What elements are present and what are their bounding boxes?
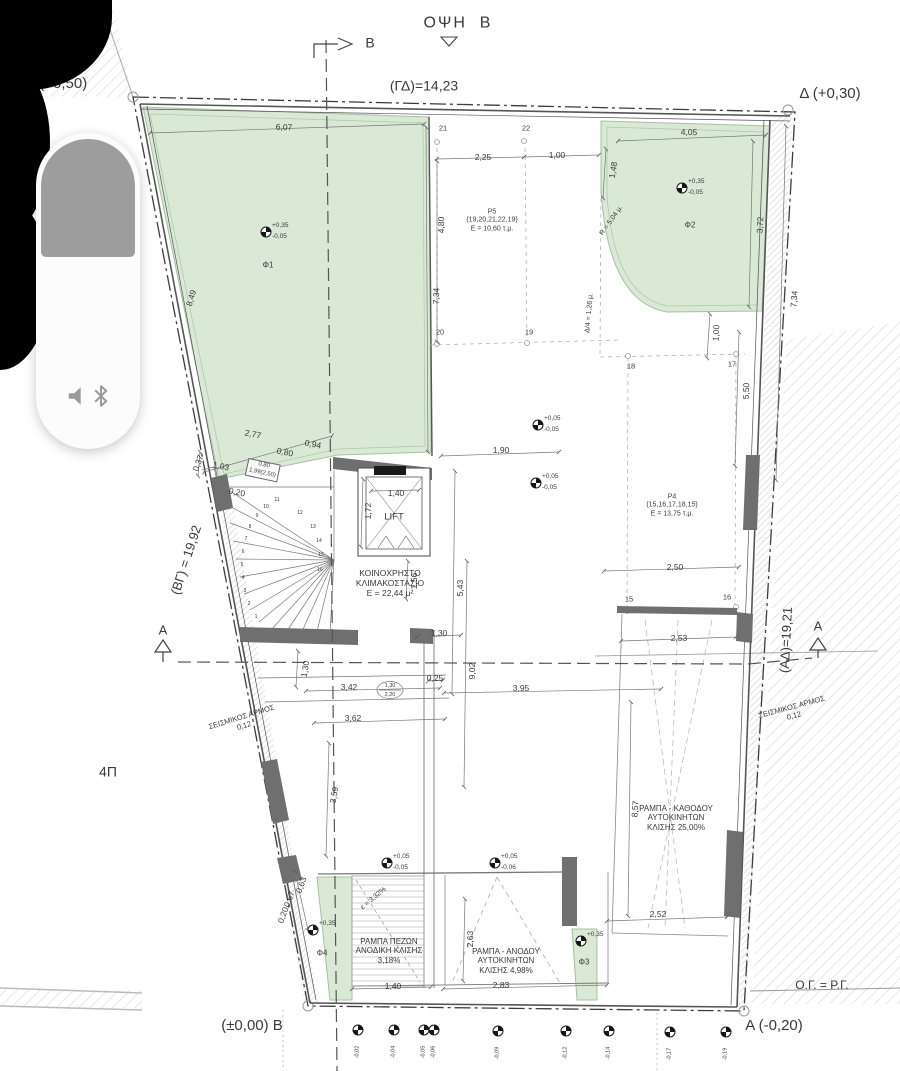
level-value: -0,14	[606, 1047, 612, 1060]
level-value: -0,06	[501, 865, 516, 872]
level-value: +0,35	[272, 223, 288, 230]
level-value: -0,05	[688, 190, 703, 197]
floor-plan-drawing	[0, 0, 900, 1071]
bluetooth-icon	[92, 385, 110, 407]
level-marker-icon	[665, 1027, 676, 1038]
level-marker-icon	[389, 1025, 400, 1036]
level-value: -0,17	[667, 1048, 673, 1061]
level-marker-icon	[261, 227, 272, 238]
level-marker-icon	[533, 420, 544, 431]
level-marker-icon	[561, 1026, 572, 1037]
green-area-f1	[143, 107, 431, 479]
pedestrian-ramp	[352, 876, 424, 986]
level-value: -0,05	[542, 485, 557, 492]
level-value: -0,09	[495, 1047, 501, 1060]
section-line-a	[178, 662, 748, 664]
level-value: -0,02	[355, 1046, 361, 1059]
level-value: -0,05	[393, 865, 408, 872]
level-marker-icon	[308, 925, 319, 936]
level-marker-icon	[493, 1026, 504, 1037]
green-area-f4	[317, 877, 352, 1000]
volume-overlay-panel[interactable]	[36, 133, 140, 449]
lift-shaft	[358, 466, 430, 556]
section-symbol-b	[314, 38, 352, 58]
floor-plan-page: ΟΨΗ ΒΒΓ (+0,50)(ΓΔ)=14,23Δ (+0,30)(ΒΓ) =…	[0, 0, 900, 1071]
car-ramp-down	[612, 614, 728, 936]
level-value: -0,12	[563, 1047, 569, 1060]
level-value: +0,35	[688, 179, 704, 186]
level-value: -0,05	[421, 1046, 427, 1059]
level-marker-icon	[604, 1026, 615, 1037]
level-marker-icon	[429, 1025, 440, 1036]
level-value: -0,04	[391, 1046, 397, 1059]
level-value: +0,05	[544, 416, 560, 423]
level-marker-icon	[382, 858, 393, 869]
ramps	[352, 614, 728, 986]
level-marker-icon	[353, 1025, 364, 1036]
level-marker-icon	[576, 936, 587, 947]
level-value: +0,05	[393, 854, 409, 861]
level-marker-icon	[490, 858, 501, 869]
view-direction-triangle	[441, 37, 457, 46]
speaker-icon	[66, 385, 88, 407]
section-symbol-a-left	[155, 640, 171, 662]
level-value: +0,05	[501, 854, 517, 861]
volume-slider-fill[interactable]	[41, 139, 135, 257]
level-marker-icon	[531, 478, 542, 489]
level-marker-icon	[721, 1027, 732, 1038]
volume-icons-row	[36, 385, 140, 407]
level-value: -0,19	[723, 1048, 729, 1061]
level-value: -0,05	[544, 427, 559, 434]
green-area-f2	[601, 121, 770, 312]
level-value: -0,05	[272, 234, 287, 241]
level-value: +0,05	[542, 474, 558, 481]
walls	[211, 455, 760, 926]
level-value: +0,35	[319, 921, 335, 928]
level-value: -0,06	[431, 1046, 437, 1059]
level-marker-icon	[677, 183, 688, 194]
level-value: +0,35	[587, 932, 603, 939]
